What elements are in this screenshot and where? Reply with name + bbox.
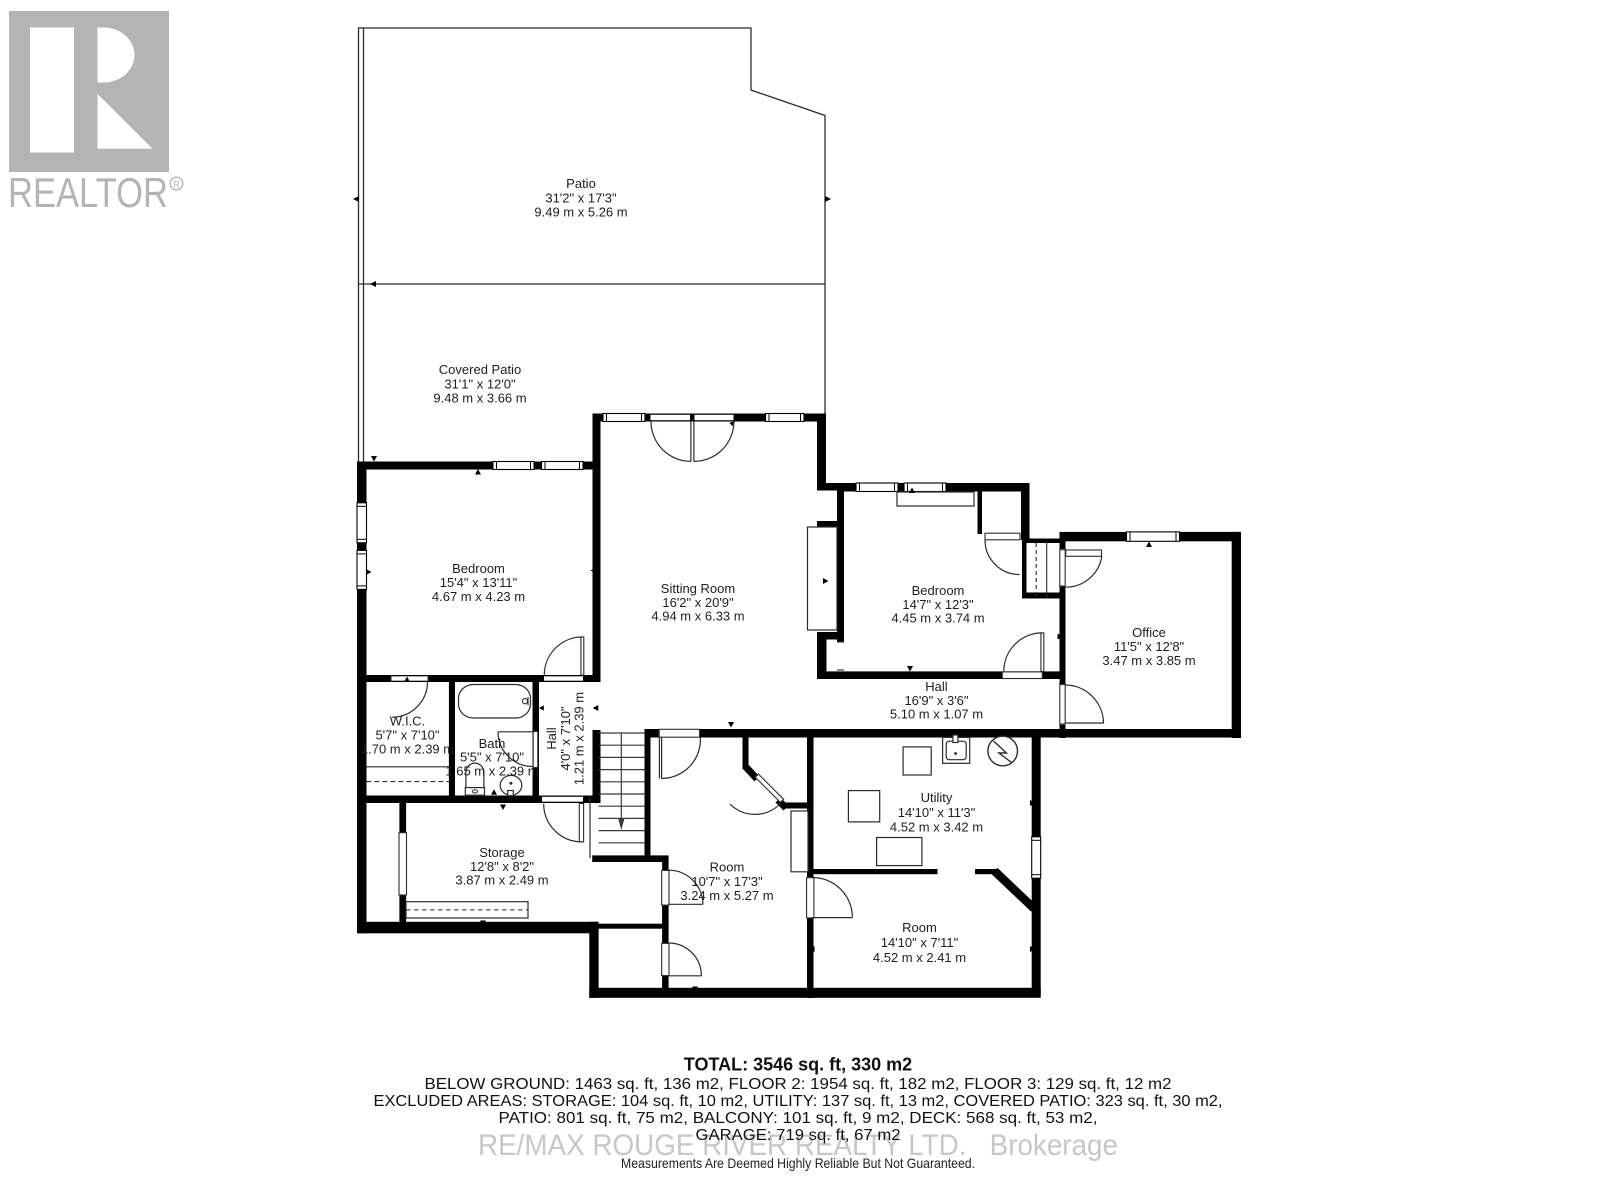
svg-text:3.24 m x 5.27 m: 3.24 m x 5.27 m — [680, 888, 773, 903]
svg-text:16'9" x 3'6": 16'9" x 3'6" — [904, 693, 968, 708]
svg-text:PATIO: 801 sq. ft, 75 m2, BALC: PATIO: 801 sq. ft, 75 m2, BALCONY: 101 s… — [499, 1110, 1098, 1127]
svg-text:16'2" x 20'9": 16'2" x 20'9" — [662, 595, 734, 610]
svg-text:EXCLUDED AREAS: STORAGE: 104 s: EXCLUDED AREAS: STORAGE: 104 sq. ft, 10 … — [374, 1093, 1223, 1110]
svg-text:9.49 m x 5.26 m: 9.49 m x 5.26 m — [534, 205, 627, 220]
svg-text:Room: Room — [710, 860, 745, 875]
svg-text:10'7" x 17'3": 10'7" x 17'3" — [691, 874, 763, 889]
svg-text:3.47 m x 3.85 m: 3.47 m x 3.85 m — [1102, 653, 1195, 668]
svg-text:Room: Room — [902, 920, 937, 935]
svg-text:Hall: Hall — [544, 727, 559, 750]
svg-text:4.45 m x 3.74 m: 4.45 m x 3.74 m — [891, 611, 984, 626]
svg-text:GARAGE: 719 sq. ft, 67 m2: GARAGE: 719 sq. ft, 67 m2 — [696, 1127, 901, 1144]
svg-text:12'8" x 8'2": 12'8" x 8'2" — [470, 859, 534, 874]
svg-text:14'7" x 12'3": 14'7" x 12'3" — [902, 597, 974, 612]
svg-text:REALTOR: REALTOR — [8, 169, 168, 216]
svg-text:TOTAL: 3546 sq. ft, 330 m2: TOTAL: 3546 sq. ft, 330 m2 — [684, 1055, 912, 1075]
svg-text:Covered Patio: Covered Patio — [439, 362, 521, 377]
svg-text:1.70 m x 2.39 m: 1.70 m x 2.39 m — [361, 741, 454, 756]
svg-text:Bedroom: Bedroom — [912, 583, 965, 598]
svg-text:Measurements Are Deemed Highly: Measurements Are Deemed Highly Reliable … — [621, 1155, 975, 1171]
svg-text:11'5" x 12'8": 11'5" x 12'8" — [1114, 639, 1185, 654]
svg-text:Patio: Patio — [566, 176, 596, 191]
svg-text:Storage: Storage — [479, 845, 525, 860]
svg-text:5.10 m x 1.07 m: 5.10 m x 1.07 m — [890, 707, 983, 722]
svg-text:1.65 m x 2.39 m: 1.65 m x 2.39 m — [445, 763, 538, 778]
svg-text:Bedroom: Bedroom — [452, 561, 505, 576]
svg-text:4.52 m x 3.42 m: 4.52 m x 3.42 m — [890, 820, 983, 835]
svg-text:Utility: Utility — [921, 790, 953, 805]
svg-text:14'10" x 7'11": 14'10" x 7'11" — [881, 935, 959, 950]
svg-text:4.67 m x 4.23 m: 4.67 m x 4.23 m — [432, 589, 525, 604]
svg-text:4.94 m x 6.33 m: 4.94 m x 6.33 m — [651, 609, 744, 624]
svg-text:BELOW GROUND: 1463 sq. ft, 136: BELOW GROUND: 1463 sq. ft, 136 m2, FLOOR… — [425, 1076, 1172, 1093]
svg-text:1.21 m x 2.39 m: 1.21 m x 2.39 m — [572, 692, 587, 785]
svg-text:31'2" x 17'3": 31'2" x 17'3" — [545, 190, 617, 205]
svg-text:R: R — [173, 180, 180, 190]
svg-text:Office: Office — [1132, 625, 1166, 640]
svg-text:Sitting Room: Sitting Room — [661, 581, 735, 596]
svg-text:Hall: Hall — [925, 679, 948, 694]
svg-text:15'4" x 13'11": 15'4" x 13'11" — [440, 575, 518, 590]
svg-text:9.48 m x 3.66 m: 9.48 m x 3.66 m — [433, 391, 526, 406]
svg-text:W.I.C.: W.I.C. — [390, 714, 425, 729]
svg-text:3.87 m x 2.49 m: 3.87 m x 2.49 m — [455, 873, 548, 888]
svg-text:4'0" x 7'10": 4'0" x 7'10" — [558, 706, 573, 770]
svg-text:31'1" x 12'0": 31'1" x 12'0" — [444, 376, 516, 391]
svg-text:5'7" x 7'10": 5'7" x 7'10" — [375, 728, 439, 743]
svg-text:14'10" x 11'3": 14'10" x 11'3" — [898, 805, 976, 820]
svg-text:4.52 m x 2.41 m: 4.52 m x 2.41 m — [873, 950, 966, 965]
